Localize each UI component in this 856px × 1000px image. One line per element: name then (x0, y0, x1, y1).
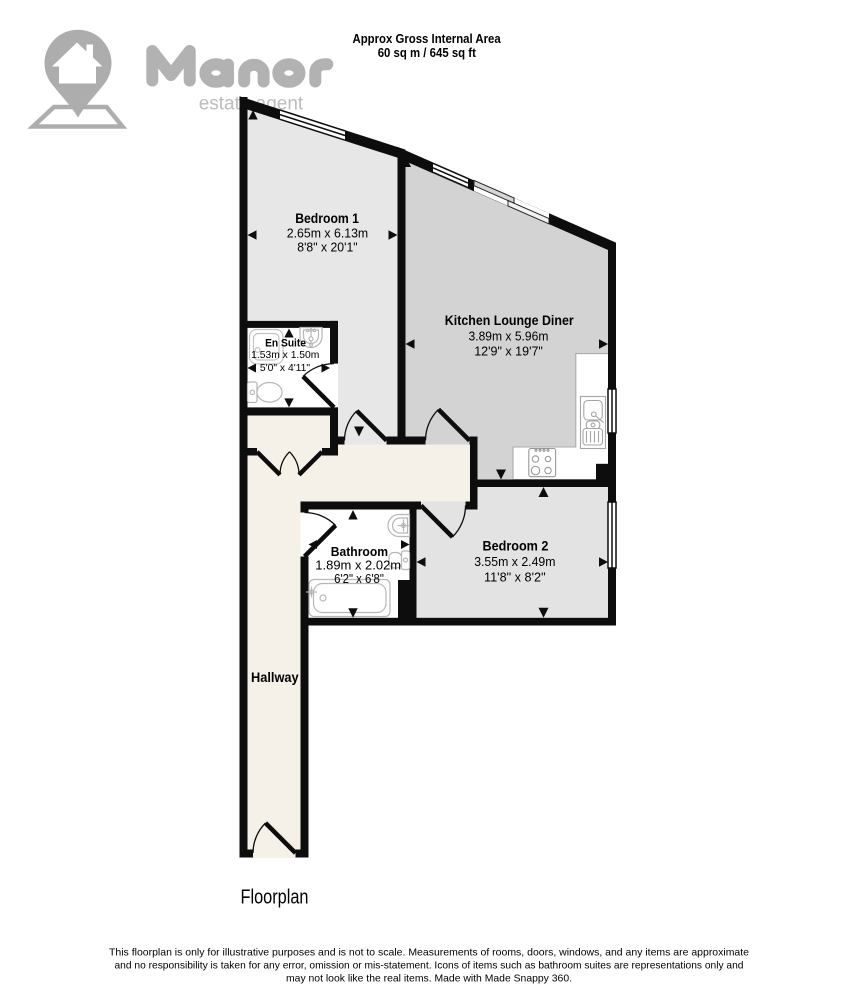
svg-text:1.53m x 1.50m: 1.53m x 1.50m (251, 350, 319, 361)
svg-text:1.89m x 2.02m: 1.89m x 2.02m (315, 558, 401, 572)
svg-text:11'8" x 8'2": 11'8" x 8'2" (484, 571, 546, 585)
svg-text:Hallway: Hallway (251, 670, 299, 685)
svg-text:6'2" x 6'8": 6'2" x 6'8" (334, 572, 384, 586)
svg-text:2.65m x 6.13m: 2.65m x 6.13m (287, 226, 368, 240)
svg-text:En Suite: En Suite (265, 338, 306, 350)
svg-text:60 sq m / 645 sq ft: 60 sq m / 645 sq ft (378, 45, 477, 60)
svg-text:Bedroom 2: Bedroom 2 (483, 539, 549, 554)
svg-text:Kitchen Lounge Diner: Kitchen Lounge Diner (445, 313, 575, 328)
svg-text:Approx Gross Internal Area: Approx Gross Internal Area (353, 31, 502, 46)
svg-text:Floorplan: Floorplan (241, 886, 309, 909)
svg-text:and no responsibility is taken: and no responsibility is taken for any e… (115, 961, 744, 972)
svg-text:12'9" x 19'7": 12'9" x 19'7" (474, 345, 543, 359)
svg-text:This floorplan is only for ill: This floorplan is only for illustrative … (109, 948, 749, 959)
svg-text:Bedroom 1: Bedroom 1 (295, 211, 359, 226)
svg-text:8'8" x 20'1": 8'8" x 20'1" (297, 240, 357, 254)
svg-text:5'0" x 4'11": 5'0" x 4'11" (260, 363, 311, 374)
svg-text:3.55m x 2.49m: 3.55m x 2.49m (474, 555, 555, 569)
svg-text:Bathroom: Bathroom (331, 544, 388, 559)
svg-text:3.89m x 5.96m: 3.89m x 5.96m (469, 329, 549, 343)
svg-text:may not look like the real ite: may not look like the real items. Made w… (286, 974, 572, 985)
